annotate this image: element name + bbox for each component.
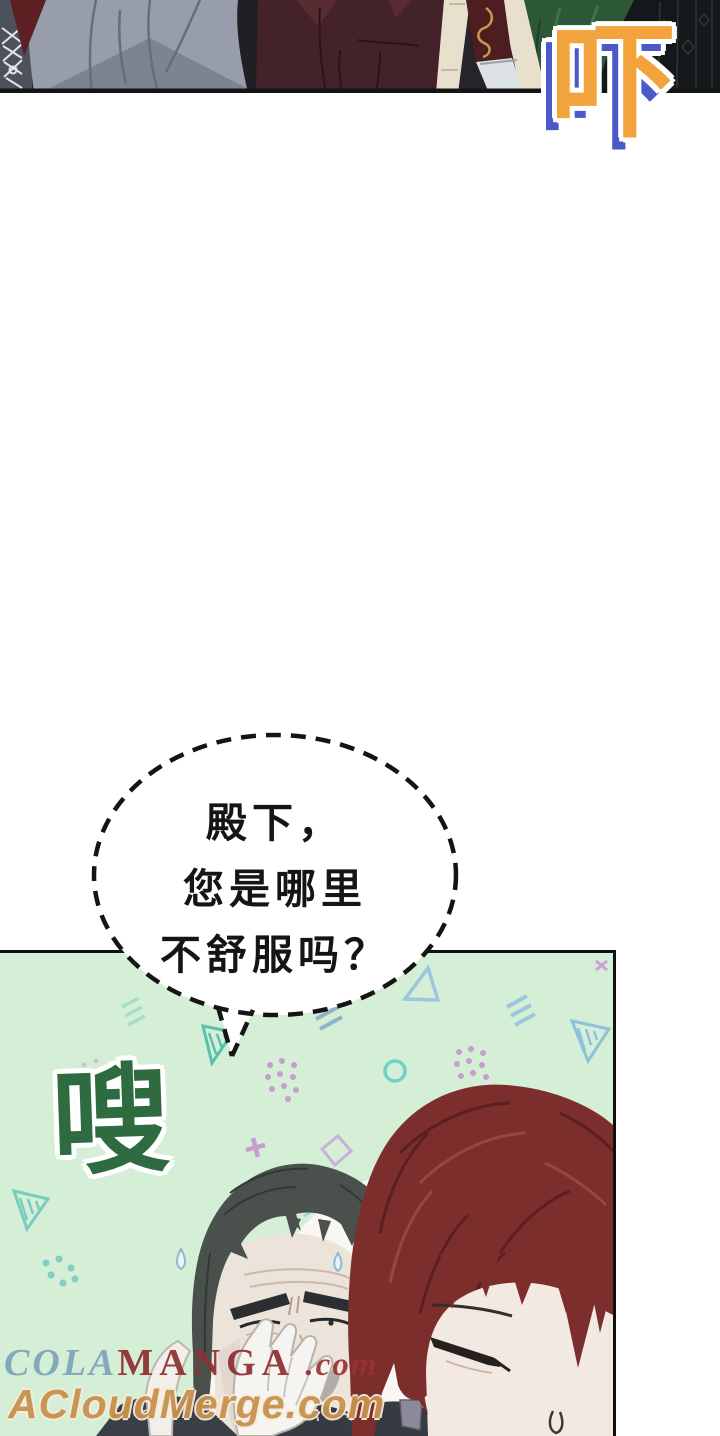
deco-triangle-hatched-2 bbox=[572, 1021, 609, 1061]
deco-dots-teal bbox=[43, 1256, 79, 1287]
bubble-line-1: 殿下， bbox=[95, 790, 455, 856]
watermark-colamanga: COLAMANGA .com bbox=[4, 1341, 378, 1385]
old-man-shoulder-plate bbox=[400, 1400, 422, 1430]
deco-triangle-hatched-3 bbox=[14, 1191, 48, 1229]
watermark-acloudmerge: ACloudMerge.com bbox=[8, 1381, 385, 1428]
watermark-colamanga-cola: COLA bbox=[4, 1342, 117, 1384]
deco-lines-blue-2 bbox=[507, 996, 535, 1025]
bubble-line-3: 不舒服吗？ bbox=[95, 922, 455, 988]
sfx-startle: 吓 吓 bbox=[552, 22, 720, 182]
sfx-startle-text: 吓 bbox=[552, 22, 676, 146]
speech-bubble-text: 殿下， 您是哪里 不舒服吗？ bbox=[95, 790, 455, 988]
deco-cross-purple bbox=[596, 961, 607, 970]
maroon-coat-figure bbox=[256, 0, 452, 93]
sfx-whoosh: 嗖 bbox=[50, 1060, 172, 1182]
deco-square-lilac bbox=[322, 1136, 351, 1165]
watermark-colamanga-manga: MANGA bbox=[117, 1342, 295, 1384]
watermark-colamanga-com: .com bbox=[295, 1347, 378, 1383]
gray-jacket-figure bbox=[28, 0, 256, 93]
bubble-line-2: 您是哪里 bbox=[95, 856, 455, 922]
comic-page: 吓 吓 bbox=[0, 0, 720, 1436]
deco-plus-purple bbox=[246, 1138, 265, 1157]
